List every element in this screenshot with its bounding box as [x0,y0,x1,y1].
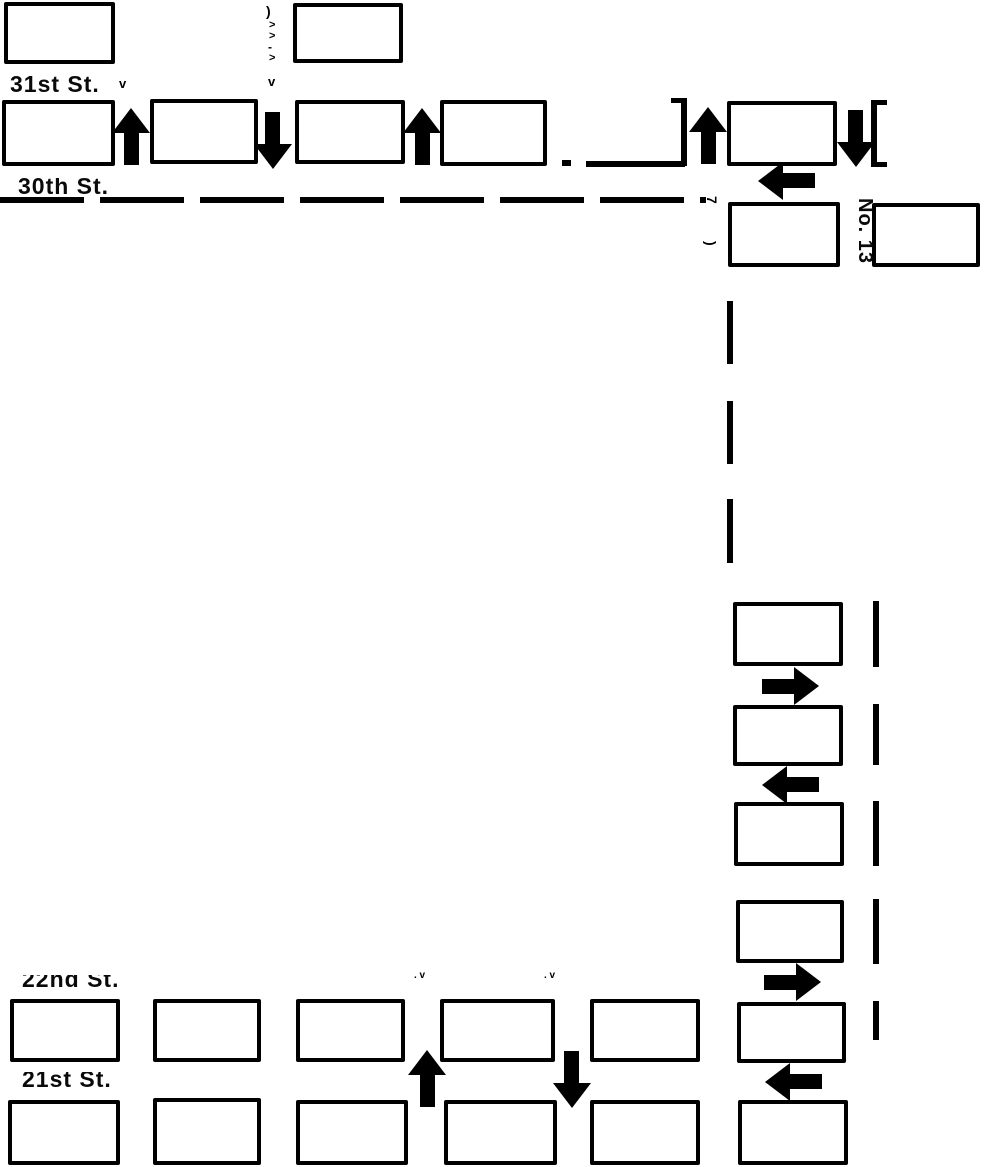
arrow-head-icon [837,142,875,167]
building-block [872,203,980,267]
building-block [737,1002,846,1063]
building-block [733,705,843,766]
building-block [2,100,115,166]
arrow-shaft [762,679,795,694]
arrow-head-icon [765,1063,790,1101]
street-label-22nd: 22nd St. [22,966,119,993]
line-segment [586,161,685,167]
building-block [728,202,840,267]
arrow-shaft [786,778,819,793]
clipped-text-fragment: > [269,53,275,64]
line-segment [873,601,879,667]
building-block [733,602,843,666]
line-segment [727,401,733,464]
clipped-text-fragment: 7 [705,196,719,204]
building-block [734,802,844,866]
building-block [150,99,258,164]
arrow-head-icon [553,1083,591,1108]
street-label-21st: 21st St. [22,1066,112,1093]
clipped-text-fragment: v [268,75,275,88]
one-way-arrow-up [402,108,442,166]
arrow-head-icon [403,108,441,133]
line-segment [727,499,733,563]
arrow-head-icon [112,108,150,133]
building-block [296,999,405,1062]
street-label-30th: 30th St. [18,173,109,200]
building-block [296,1100,408,1165]
line-segment [562,160,571,166]
arrow-shaft [420,1074,435,1107]
building-block [590,999,700,1062]
arrow-head-icon [796,963,821,1001]
building-block [736,900,844,963]
one-way-arrow-right [763,962,821,1002]
clipped-text-fragment: . v [414,971,425,981]
line-segment [873,704,879,765]
building-block [153,1098,261,1165]
building-block [4,2,115,64]
clipped-text-fragment: . v [544,971,555,981]
line-segment [873,1001,879,1040]
building-block [590,1100,700,1165]
arrow-head-icon [758,162,783,200]
one-way-arrow-down [552,1050,592,1108]
arrow-head-icon [254,144,292,169]
building-block [727,101,837,166]
building-block [293,3,403,63]
arrow-shaft [764,975,797,990]
line-segment [873,801,879,866]
one-way-arrow-down [253,111,293,169]
arrow-shaft [701,131,716,164]
arrow-head-icon [408,1050,446,1075]
one-way-arrow-right [761,666,819,706]
line-segment [873,899,879,964]
line-segment [681,99,687,166]
arrow-shaft [415,132,430,165]
street-map-canvas: 31st St.30th St.22nd St.21st St.No. 13)>… [0,0,985,1167]
building-block [440,100,547,166]
one-way-arrow-left [765,1062,823,1102]
one-way-arrow-up [111,108,151,166]
one-way-arrow-down [836,109,876,167]
building-block [440,999,555,1062]
arrow-shaft [565,1051,580,1084]
one-way-arrow-up [407,1050,447,1108]
building-block [295,100,405,164]
arrow-head-icon [762,766,787,804]
arrow-shaft [124,132,139,165]
clipped-text-fragment: ) [704,241,718,246]
building-block [10,999,120,1062]
clipped-text-fragment: v [119,77,126,90]
arrow-head-icon [689,107,727,132]
arrow-shaft [789,1075,822,1090]
arrow-shaft [849,110,864,143]
clipped-text-fragment: ) [266,4,271,18]
building-block [8,1100,120,1165]
arrow-shaft [266,112,281,145]
arrow-shaft [782,174,815,189]
building-block [738,1100,848,1165]
arrow-head-icon [794,667,819,705]
line-segment [671,98,687,103]
line-segment [871,100,887,105]
building-block [153,999,261,1062]
building-block [444,1100,557,1165]
one-way-arrow-up [688,107,728,165]
line-segment [727,301,733,364]
street-label-31st: 31st St. [10,71,100,98]
lot-number-13: No. 13 [853,198,876,264]
one-way-arrow-left [758,161,816,201]
one-way-arrow-left [762,765,820,805]
